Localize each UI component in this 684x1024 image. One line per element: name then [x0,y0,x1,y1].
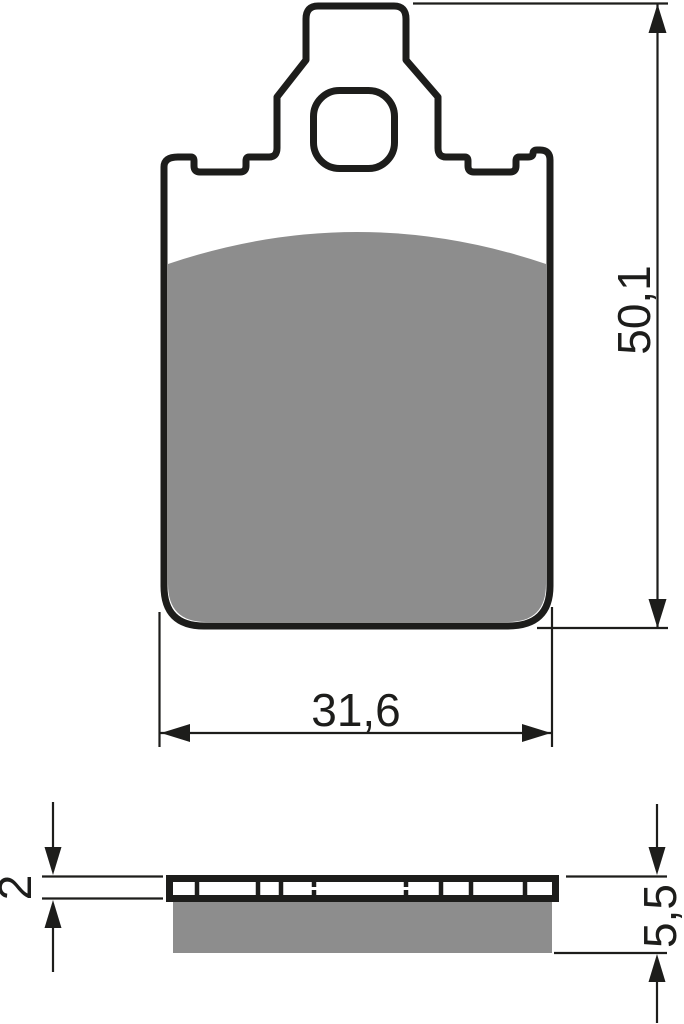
arrowhead-down [45,847,62,875]
arrowhead-right [522,724,551,742]
front-view [164,6,550,626]
technical-drawing-page: 50,1 31,6 [0,0,684,1024]
friction-material-side [173,899,552,953]
total-thickness-dimension: 5,5 [554,804,684,1023]
backing-plate [170,879,556,899]
arrowhead-left [161,724,190,742]
friction-material-front [168,232,546,622]
width-dimension-label: 31,6 [311,684,401,736]
height-dimension-label: 50,1 [608,265,660,355]
plate-thickness-dimension: 2 [0,802,163,972]
plate-thickness-label: 2 [0,875,41,901]
total-thickness-label: 5,5 [634,884,684,948]
arrowhead-down [649,847,666,875]
arrowhead-up [649,954,666,982]
arrowhead-up [649,4,667,33]
side-profile-view [170,878,556,953]
arrowhead-up [45,900,62,928]
arrowhead-down [649,599,667,628]
brake-pad-dimensional-drawing: 50,1 31,6 [0,0,684,1024]
mounting-hole [314,91,395,169]
